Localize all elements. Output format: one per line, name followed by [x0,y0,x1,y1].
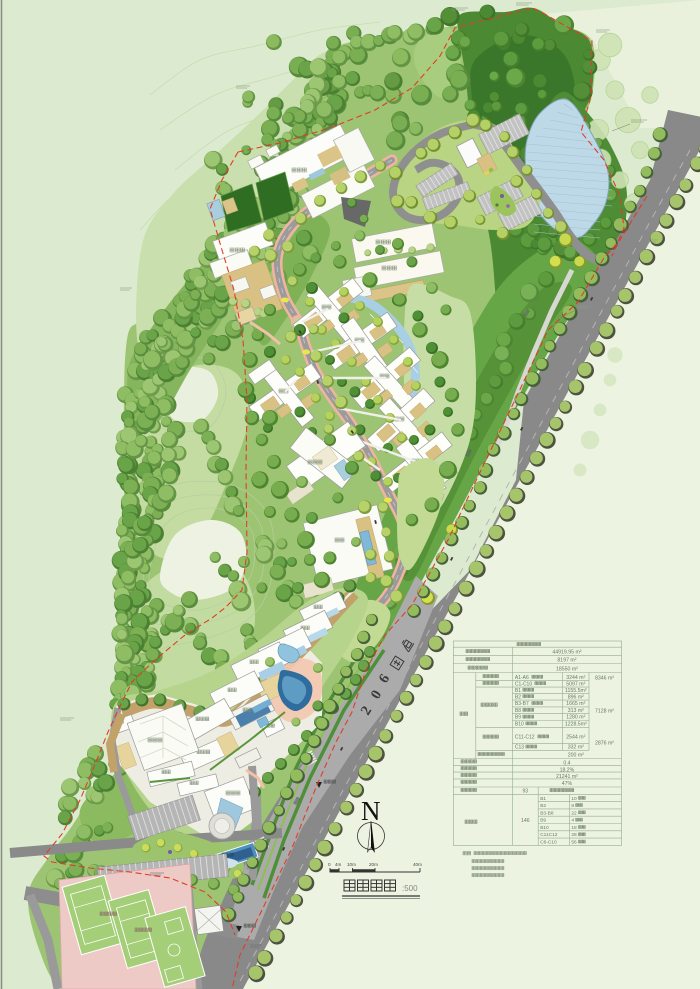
svg-text:200 m²: 200 m² [568,753,584,759]
svg-text:313 m²: 313 m² [568,708,584,714]
svg-text:10m: 10m [347,862,356,867]
svg-text:C1-C10: C1-C10 [515,681,532,687]
svg-text:B10: B10 [515,722,524,728]
svg-text:8197 m²: 8197 m² [557,658,576,664]
svg-text:B9: B9 [540,818,546,824]
svg-text:0.4: 0.4 [563,761,570,767]
svg-text:C11-C12: C11-C12 [515,735,535,741]
svg-text:93: 93 [523,789,529,795]
svg-text:4: 4 [571,818,574,824]
svg-text::500: :500 [402,884,418,893]
svg-text:47%: 47% [562,781,573,787]
svg-text:2544 m²: 2544 m² [566,735,585,741]
svg-text:146: 146 [521,818,530,824]
svg-text:B2: B2 [540,803,546,809]
svg-text:4m: 4m [335,862,342,867]
svg-text:44919.95 m²: 44919.95 m² [552,650,581,656]
svg-text:1665 m²: 1665 m² [566,701,585,707]
svg-text:1280 m²: 1280 m² [566,715,585,721]
svg-text:8: 8 [571,803,574,809]
svg-text:C13: C13 [515,745,524,751]
svg-text:C6-C10: C6-C10 [540,840,557,846]
svg-text:0: 0 [328,862,331,867]
svg-text:896 m²: 896 m² [568,694,584,700]
svg-text:B10: B10 [540,825,549,831]
svg-text:5097 m²: 5097 m² [566,681,585,687]
svg-text:28: 28 [571,832,577,838]
svg-text:1228.5m²: 1228.5m² [565,722,587,728]
svg-text:B9: B9 [515,715,521,721]
svg-text:C11C12: C11C12 [540,832,558,838]
svg-text:56: 56 [571,840,577,846]
svg-text:A1-A6: A1-A6 [515,675,529,681]
svg-text:22: 22 [571,810,577,816]
svg-text:B8: B8 [515,708,521,714]
svg-text:20m: 20m [369,862,378,867]
svg-text:B3-B7: B3-B7 [515,701,529,707]
svg-text:18.2%: 18.2% [560,767,575,773]
svg-text:18550 m²: 18550 m² [556,667,578,673]
svg-text:B1: B1 [540,796,546,802]
svg-text:B2: B2 [515,694,521,700]
svg-text:1155.5m²: 1155.5m² [565,688,587,694]
svg-text:B1: B1 [515,688,521,694]
svg-text:21241 m²: 21241 m² [556,774,578,780]
svg-text:2876 m²: 2876 m² [595,741,614,747]
svg-text:8346 m²: 8346 m² [595,676,614,682]
svg-text:332 m²: 332 m² [568,745,584,751]
svg-text:40m: 40m [413,862,422,867]
svg-text:3244 m²: 3244 m² [566,675,585,681]
svg-text:B3-B8: B3-B8 [540,810,554,816]
svg-text:10: 10 [571,796,577,802]
svg-text:7128 m²: 7128 m² [595,709,614,715]
svg-text:18: 18 [571,825,577,831]
